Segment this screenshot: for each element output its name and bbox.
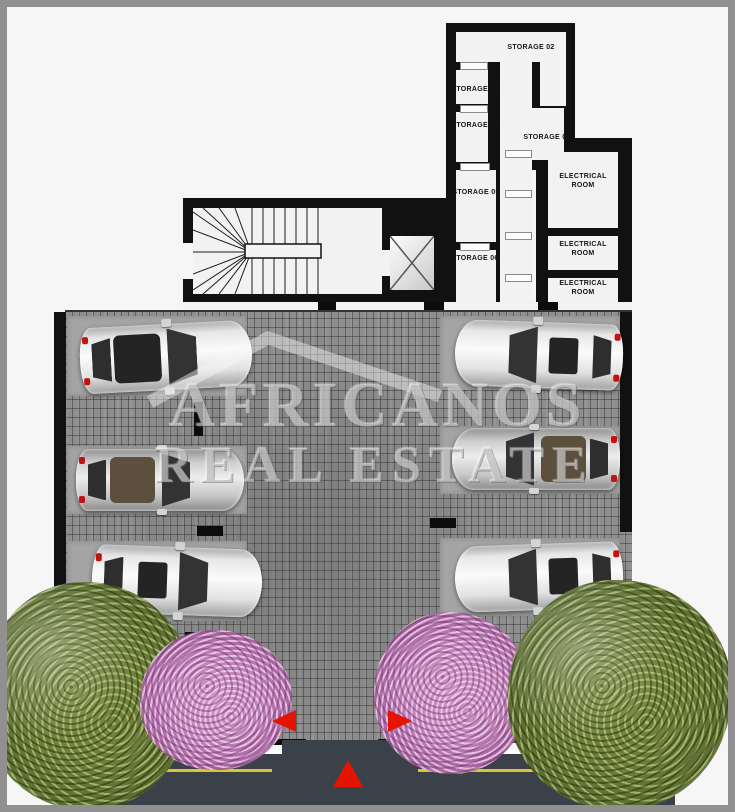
door-jamb [318, 302, 336, 310]
car-right-middle [452, 428, 620, 490]
room-label-storage-01: STORAGE 01 [507, 133, 587, 142]
car-taillight [611, 475, 618, 482]
green-tree-right [508, 580, 732, 810]
room-label-electrical-1: ELECTRICAL ROOM [555, 172, 611, 191]
car-right-top [454, 319, 624, 391]
car-taillight [79, 496, 86, 503]
car-sunroof [541, 436, 586, 482]
room-storage-05 [456, 170, 496, 242]
car-left-middle [76, 449, 244, 511]
car-mirror [161, 319, 172, 327]
door-symbol [505, 150, 532, 158]
car-taillight [95, 553, 102, 561]
car-left-top [78, 320, 253, 395]
door-jamb [424, 302, 444, 310]
room-label-electrical-2: ELECTRICAL ROOM [555, 240, 611, 259]
boundary-wall-left [54, 312, 66, 602]
car-mirror [175, 542, 185, 550]
pink-tree-right [374, 612, 530, 774]
column-marker [194, 402, 203, 436]
room-label-storage-02: STORAGE 02 [481, 43, 581, 52]
door-symbol [460, 62, 488, 70]
drive-arrow-right-icon [388, 710, 412, 732]
car-rear-glass [91, 338, 112, 382]
room-label-electrical-3: ELECTRICAL ROOM [555, 279, 611, 298]
wheel-stop [197, 526, 223, 536]
door-jamb [538, 302, 558, 310]
car-sunroof [110, 457, 155, 503]
door-symbol [460, 163, 490, 171]
wheel-stop [430, 518, 456, 528]
elevator-door-gap [381, 250, 390, 276]
paving-edge [65, 310, 632, 312]
door-symbol [460, 105, 488, 113]
car-mirror [172, 612, 182, 620]
room-label-storage-04: STORAGE 04 [446, 121, 504, 130]
car-mirror [533, 317, 543, 325]
car-taillight [79, 457, 86, 464]
drive-arrow-left-icon [272, 710, 296, 732]
floor-plan-canvas: STORAGE 02 STORAGE 03 STORAGE 04 STORAGE… [0, 0, 735, 812]
room-label-storage-03: STORAGE 03 [446, 85, 504, 94]
door-symbol [505, 232, 532, 240]
entrance-arrow-up-icon [333, 760, 363, 787]
room-label-storage-05: STORAGE 05 [447, 188, 505, 197]
car-mirror [531, 539, 541, 547]
car-sunroof [113, 333, 162, 384]
corridor [500, 36, 532, 304]
elevator-x-icon [390, 236, 434, 290]
pink-tree-left [140, 630, 292, 770]
car-mirror [157, 445, 167, 452]
car-windshield [162, 453, 191, 506]
car-windshield [506, 432, 535, 485]
lobby-strip [183, 302, 632, 310]
car-mirror [164, 387, 175, 395]
car-mirror [529, 488, 539, 495]
car-rear-glass [590, 439, 608, 480]
car-mirror [529, 424, 539, 431]
door-symbol [505, 274, 532, 282]
room-label-storage-06: STORAGE 06 [446, 254, 504, 263]
car-sunroof [137, 561, 167, 599]
car-mirror [157, 509, 167, 516]
car-rear-glass [592, 335, 612, 379]
car-sunroof [548, 338, 578, 375]
door-symbol [505, 190, 532, 198]
car-rear-glass [88, 460, 106, 501]
door-symbol [460, 243, 490, 251]
room-storage-04 [456, 112, 488, 162]
staircase-treads [193, 208, 382, 294]
car-mirror [531, 385, 541, 393]
stair-entry-gap [183, 243, 193, 279]
